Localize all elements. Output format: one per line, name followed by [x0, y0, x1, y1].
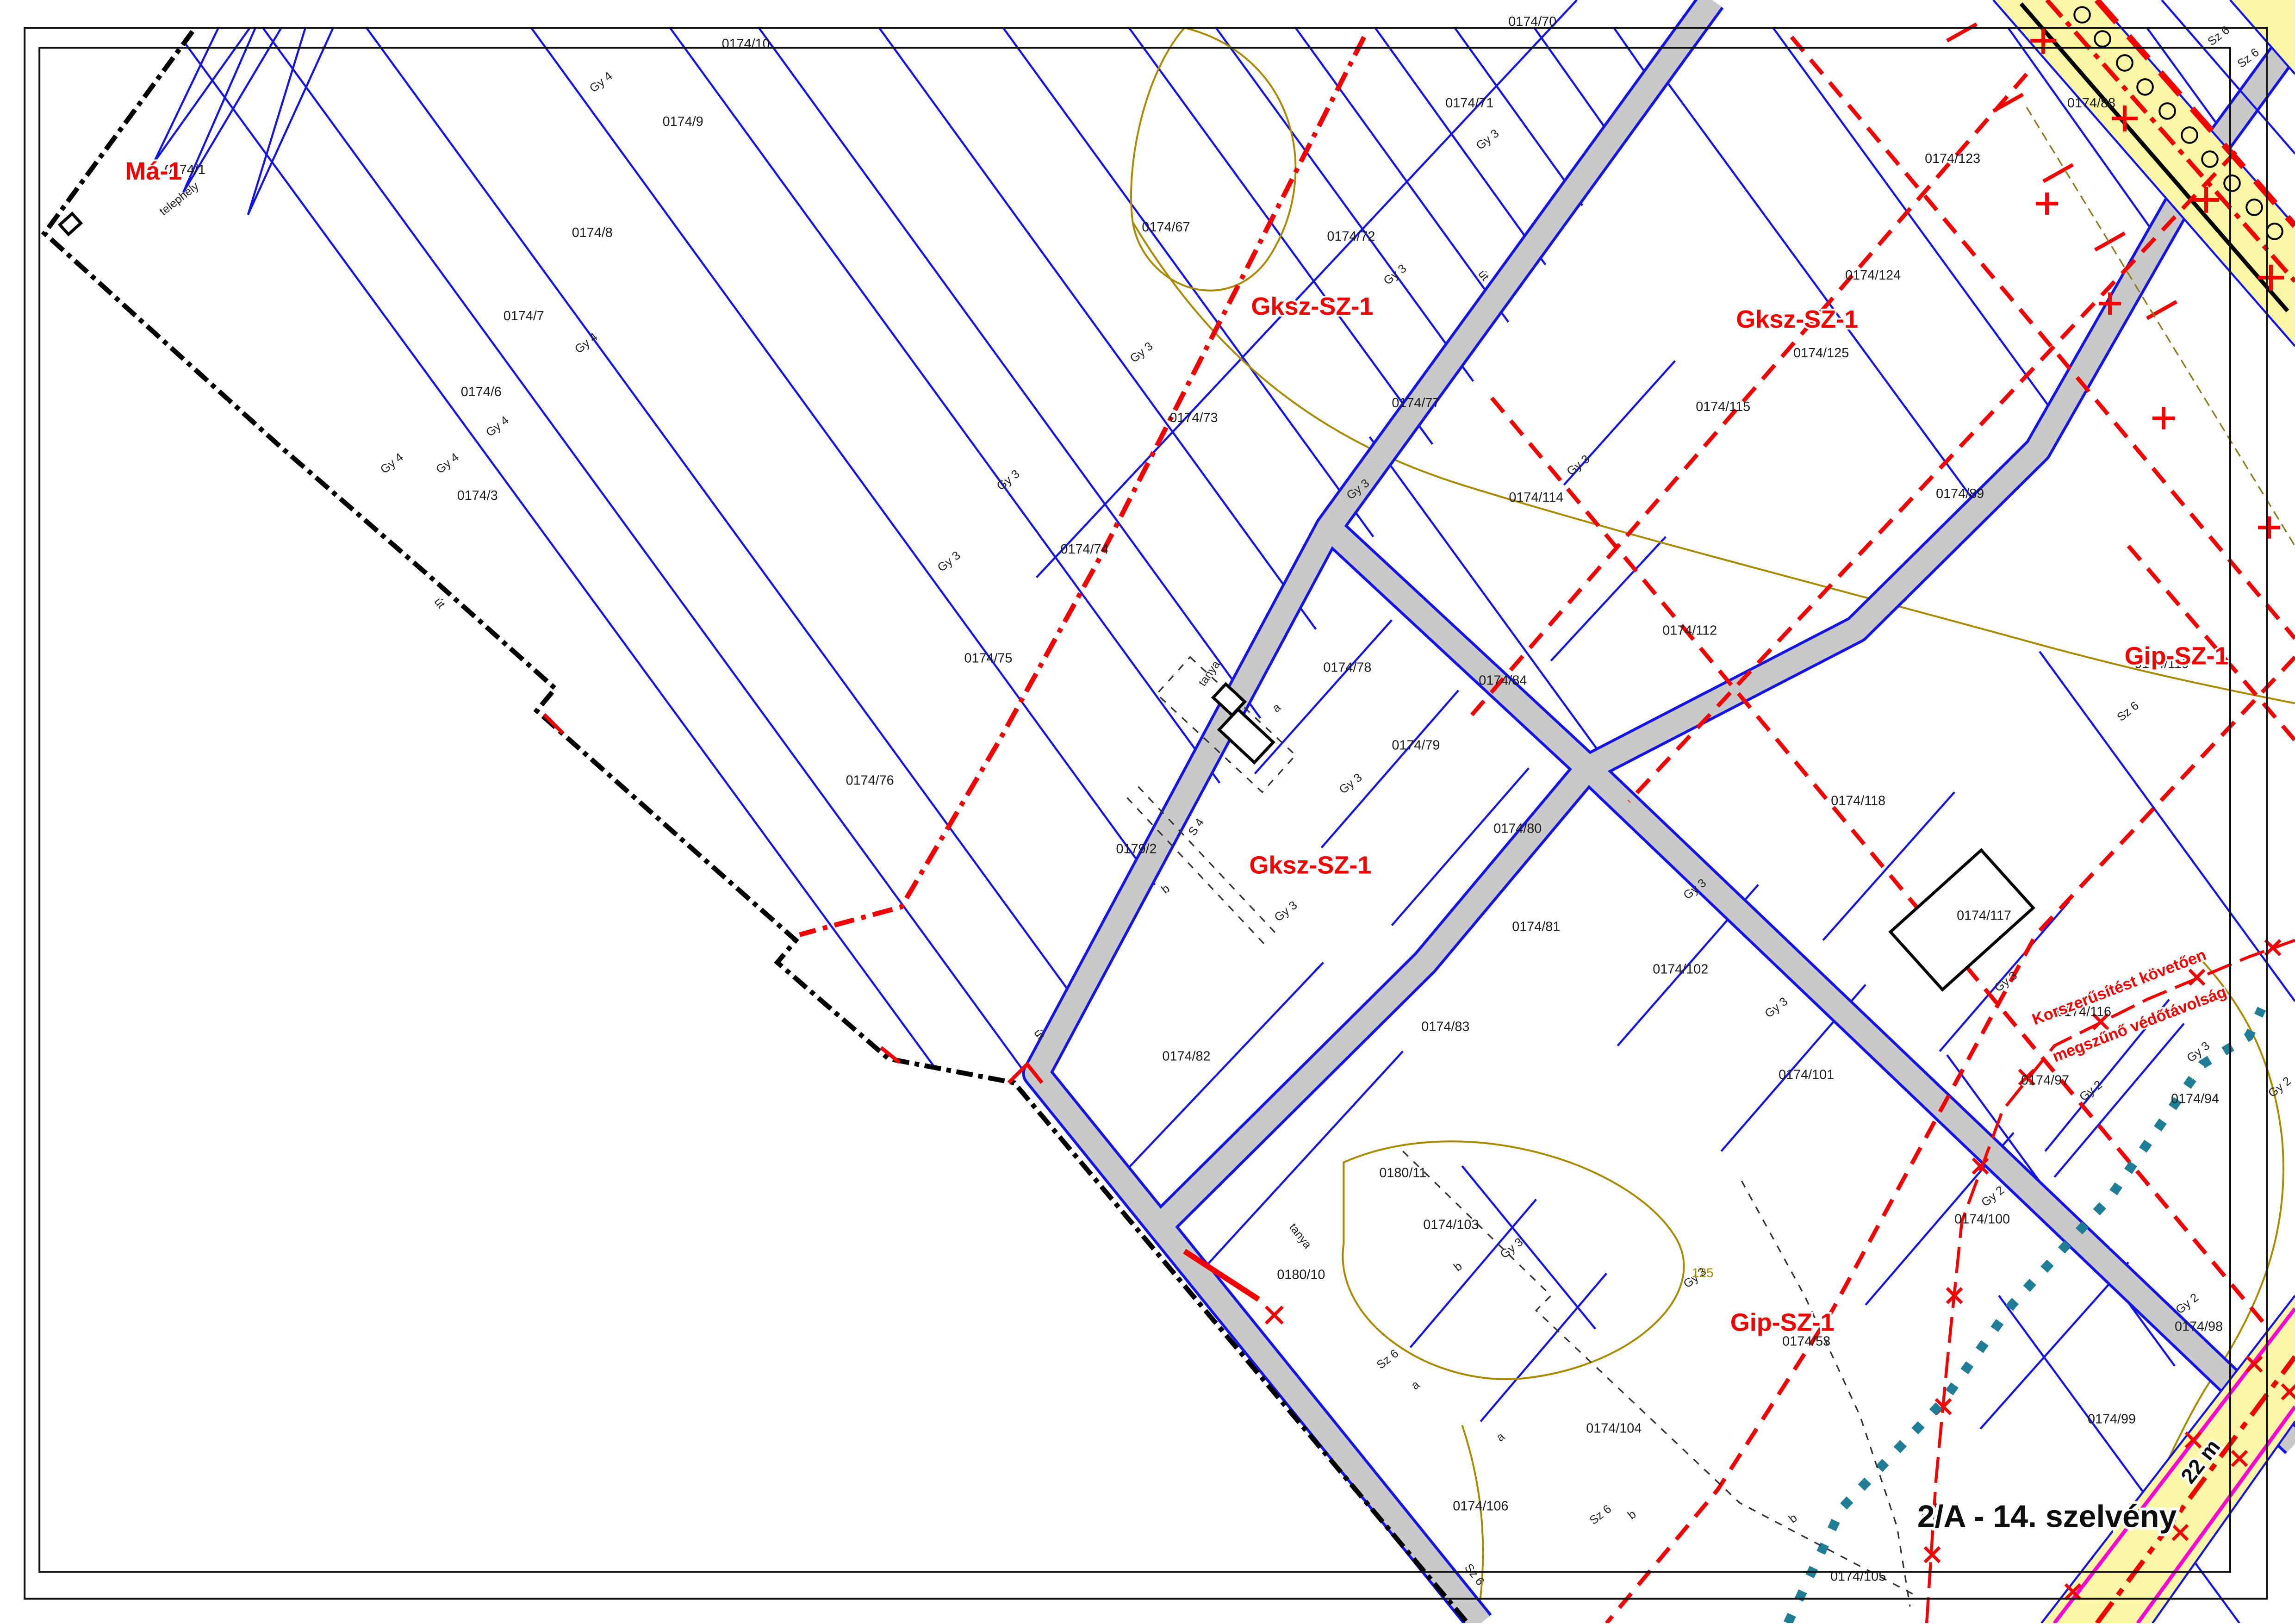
parcel-label: 0174/104: [1586, 1421, 1642, 1436]
parcel-label: 0174/88: [2067, 96, 2115, 111]
parcel-label: 0174/9: [663, 114, 703, 129]
parcel-label: 0174/72: [1327, 229, 1375, 244]
parcel-label: 0174/99: [2088, 1412, 2136, 1426]
sheet-title: 2/A - 14. szelvény: [1917, 1499, 2177, 1534]
parcel-label: 0174/80: [1493, 821, 1542, 836]
parcel-label: 0180/10: [1277, 1267, 1325, 1282]
parcel-label: 0174/78: [1323, 660, 1371, 675]
parcel-label: 0174/10: [722, 37, 770, 51]
parcel-label: 0174/102: [1653, 962, 1708, 977]
parcel-label: 0174/94: [2171, 1092, 2219, 1107]
zone-label: Má-1: [125, 157, 182, 185]
parcel-label: 0174/117: [1957, 908, 2011, 923]
parcel-label: 0174/118: [1831, 794, 1885, 809]
parcel-label: 0174/8: [572, 225, 613, 240]
parcel-label: 0174/106: [1453, 1499, 1508, 1513]
zone-label: Gksz-SZ-1: [1249, 852, 1371, 879]
parcel-label: 0174/82: [1162, 1049, 1210, 1064]
parcel-label: 0174/115: [1696, 399, 1750, 414]
parcel-label: 0174/71: [1445, 96, 1493, 111]
parcel-label: 0174/77: [1392, 396, 1440, 411]
parcel-label: 0174/7: [504, 309, 544, 324]
parcel-label: 0174/75: [964, 651, 1013, 666]
zone-label: Gksz-SZ-1: [1736, 305, 1858, 333]
parcel-label: 0174/101: [1779, 1068, 1834, 1083]
parcel-label: 0174/67: [1142, 220, 1190, 235]
parcel-label: 0174/79: [1392, 738, 1440, 753]
zoning-map-sheet: 0174/10174/30174/60174/70174/80174/90174…: [0, 0, 2295, 1623]
parcel-label: 0174/112: [1662, 623, 1717, 638]
parcel-label: 0174/98: [2175, 1319, 2223, 1334]
parcel-label: 0174/74: [1060, 542, 1108, 557]
parcel-label: 0174/84: [1479, 673, 1527, 688]
parcel-label: 0174/83: [1421, 1020, 1469, 1034]
contour-label: 125: [1692, 1265, 1714, 1280]
map-canvas: 0174/10174/30174/60174/70174/80174/90174…: [0, 0, 2295, 1623]
parcel-label: 0174/114: [1509, 490, 1563, 505]
parcel-label: 0180/11: [1379, 1165, 1426, 1180]
parcel-label: 0174/103: [1423, 1217, 1479, 1232]
parcel-label: 0174/125: [1793, 346, 1849, 361]
zone-label: Gip-SZ-1: [2125, 642, 2229, 670]
parcel-label: 0174/100: [1954, 1212, 2010, 1226]
parcel-label: 0174/73: [1169, 411, 1218, 425]
parcel-label: 0174/76: [846, 773, 894, 788]
parcel-label: 0174/81: [1512, 920, 1560, 934]
parcel-label: 0174/123: [1925, 151, 1980, 166]
parcel-label: 0174/124: [1845, 268, 1901, 283]
parcel-label: 0179/2: [1116, 842, 1157, 857]
parcel-label: 0174/6: [461, 385, 502, 399]
parcel-label: 0174/3: [457, 488, 498, 503]
parcel-label: 0174/97: [2021, 1073, 2069, 1088]
zone-label: Gip-SZ-1: [1730, 1308, 1835, 1336]
zone-label: Gksz-SZ-1: [1251, 292, 1373, 320]
parcel-label: 0174/89: [1936, 486, 1984, 501]
